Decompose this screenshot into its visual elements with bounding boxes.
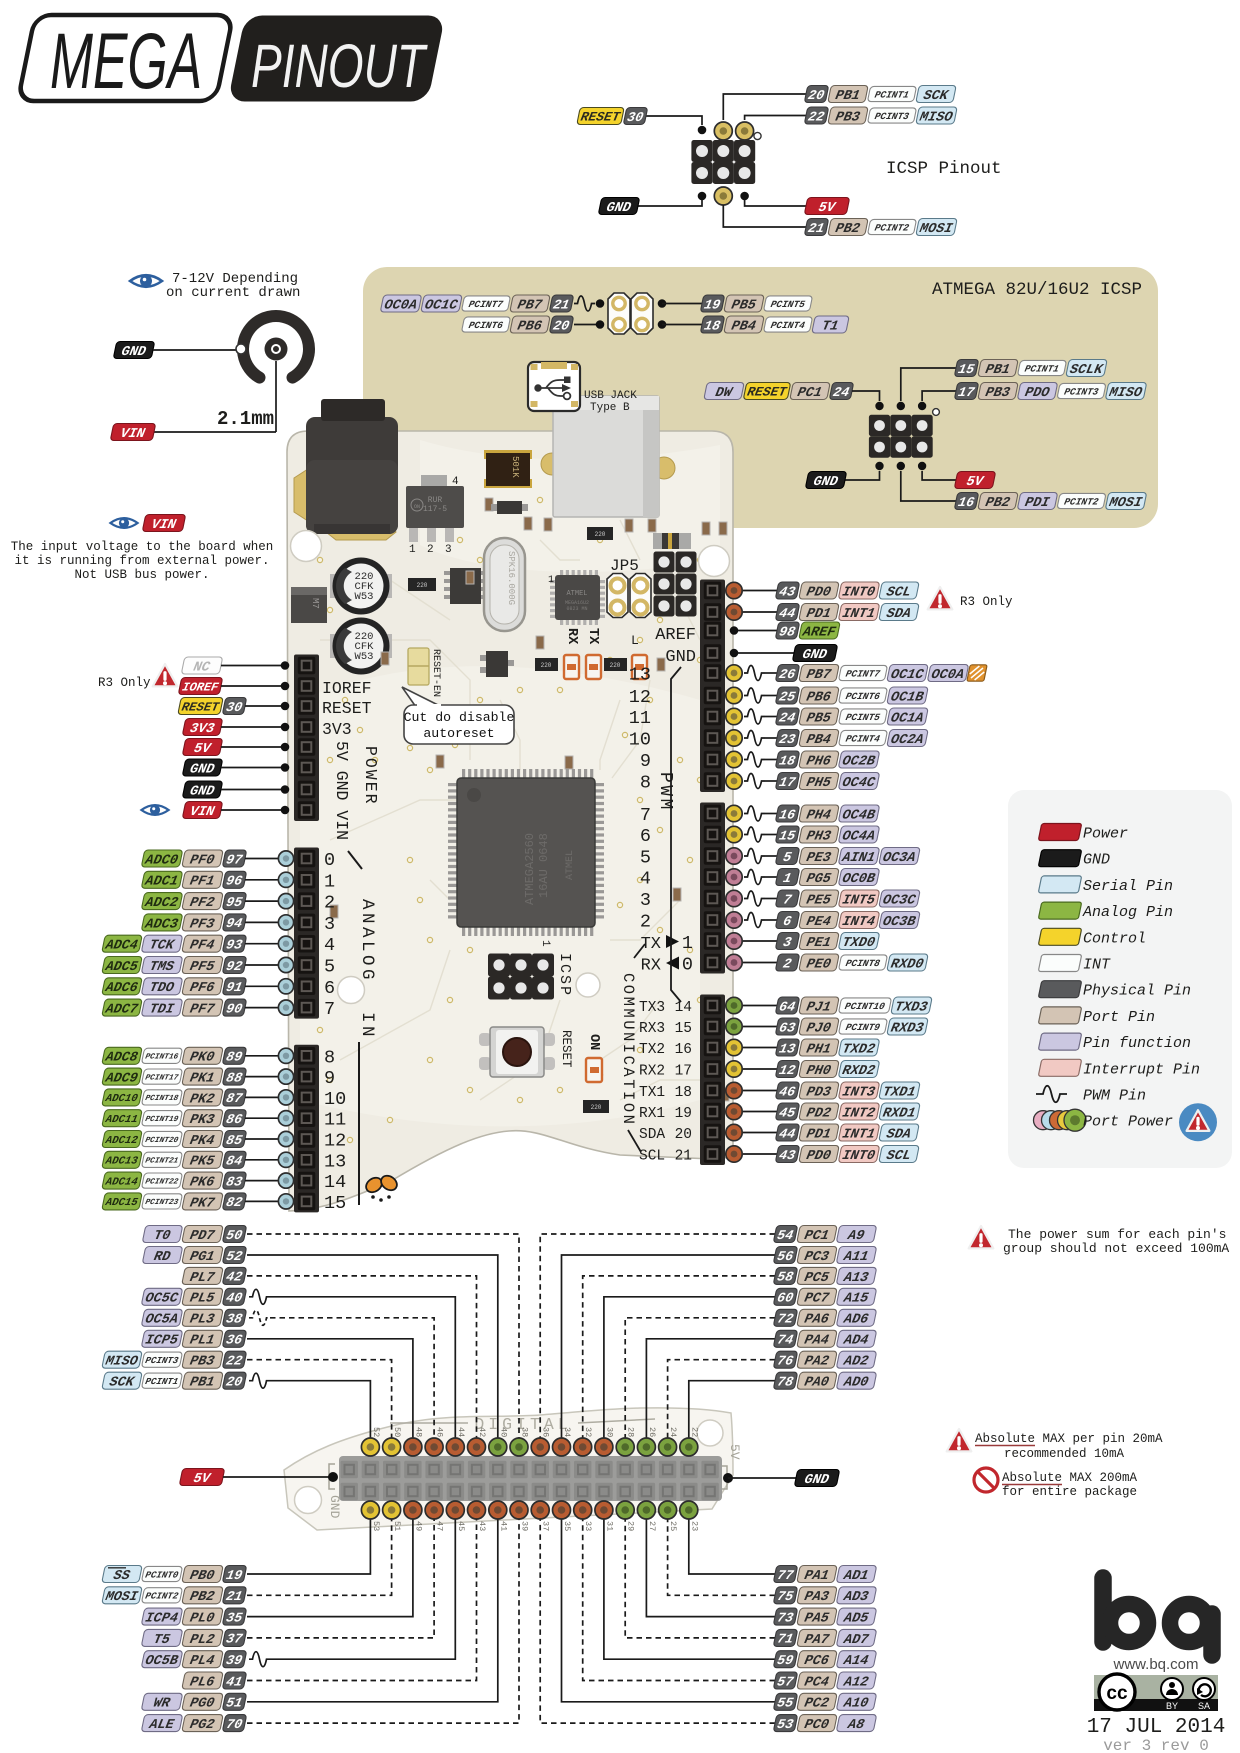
svg-text:it is running from external po: it is running from external power. <box>14 554 269 568</box>
svg-text:PA7: PA7 <box>803 1633 831 1648</box>
svg-text:PB5: PB5 <box>730 299 757 314</box>
svg-text:12: 12 <box>324 1131 346 1152</box>
svg-text:INT1: INT1 <box>841 607 876 622</box>
svg-text:PL4: PL4 <box>188 1654 215 1669</box>
svg-text:A15: A15 <box>841 1292 869 1307</box>
svg-text:21: 21 <box>675 1149 692 1165</box>
svg-text:PL5: PL5 <box>188 1292 215 1307</box>
svg-text:PE0: PE0 <box>805 958 832 973</box>
svg-text:PCINT23: PCINT23 <box>144 1198 179 1207</box>
svg-text:98: 98 <box>778 625 797 640</box>
svg-text:ANALOG: ANALOG <box>357 899 377 983</box>
svg-text:OC5C: OC5C <box>144 1292 180 1307</box>
svg-text:OC3A: OC3A <box>881 851 916 866</box>
svg-text:39: 39 <box>225 1654 244 1669</box>
svg-text:5: 5 <box>640 848 651 869</box>
svg-text:Absolute MAX 200mA: Absolute MAX 200mA <box>1002 1471 1138 1485</box>
svg-text:SA: SA <box>1198 1701 1210 1711</box>
svg-text:VIN: VIN <box>150 518 178 533</box>
svg-text:OC0B: OC0B <box>841 872 877 887</box>
svg-text:ADC6: ADC6 <box>103 981 139 996</box>
svg-text:TDO: TDO <box>148 981 176 996</box>
svg-text:26: 26 <box>778 668 797 683</box>
svg-text:220: 220 <box>541 662 552 669</box>
svg-text:PCINT6: PCINT6 <box>468 320 505 331</box>
svg-text:24: 24 <box>778 711 797 726</box>
svg-text:RESET: RESET <box>579 110 622 125</box>
svg-text:16: 16 <box>778 808 797 823</box>
svg-text:Analog Pin: Analog Pin <box>1082 904 1173 921</box>
svg-text:ICSP Pinout: ICSP Pinout <box>886 159 1002 179</box>
svg-text:PCINT3: PCINT3 <box>1063 386 1100 397</box>
svg-text:Serial Pin: Serial Pin <box>1083 878 1173 895</box>
svg-text:OC4A: OC4A <box>841 830 876 845</box>
svg-text:AD7: AD7 <box>841 1633 870 1648</box>
svg-text:PB6: PB6 <box>805 691 832 706</box>
svg-text:22: 22 <box>807 110 826 125</box>
svg-text:SCL: SCL <box>885 1149 912 1164</box>
svg-text:PL1: PL1 <box>188 1334 215 1349</box>
svg-text:VIN: VIN <box>119 427 147 442</box>
svg-text:PC1: PC1 <box>803 1229 830 1244</box>
svg-text:AREF: AREF <box>655 626 696 645</box>
svg-text:PWM: PWM <box>655 772 675 812</box>
svg-text:A11: A11 <box>841 1250 869 1265</box>
svg-text:INT3: INT3 <box>841 1086 876 1101</box>
svg-text:A13: A13 <box>841 1271 869 1286</box>
svg-text:PB3: PB3 <box>984 386 1011 401</box>
svg-text:ATMEL: ATMEL <box>566 590 587 598</box>
svg-text:2.1mm: 2.1mm <box>217 408 274 430</box>
svg-text:56: 56 <box>776 1250 795 1265</box>
svg-text:38: 38 <box>520 1427 530 1437</box>
svg-text:42: 42 <box>225 1271 244 1286</box>
svg-text:55: 55 <box>776 1697 795 1712</box>
svg-text:42: 42 <box>477 1427 487 1437</box>
svg-text:40: 40 <box>225 1292 244 1307</box>
svg-text:GND: GND <box>120 345 147 360</box>
svg-text:PF3: PF3 <box>188 917 215 932</box>
svg-text:Pin function: Pin function <box>1083 1035 1191 1052</box>
svg-text:40: 40 <box>498 1427 508 1437</box>
svg-text:21: 21 <box>807 222 826 237</box>
svg-text:43: 43 <box>778 585 797 600</box>
svg-text:IOREF: IOREF <box>322 679 372 698</box>
svg-text:Type B: Type B <box>590 402 630 414</box>
svg-text:78: 78 <box>776 1376 795 1391</box>
svg-text:96: 96 <box>225 875 244 890</box>
svg-text:AREF: AREF <box>800 626 837 641</box>
svg-text:PF5: PF5 <box>188 960 215 975</box>
svg-text:35: 35 <box>562 1521 572 1531</box>
svg-text:8: 8 <box>324 1047 335 1068</box>
svg-text:22: 22 <box>225 1355 244 1370</box>
svg-text:220: 220 <box>591 1104 602 1111</box>
svg-text:TXD3: TXD3 <box>893 1001 928 1016</box>
svg-text:PCINT5: PCINT5 <box>770 299 807 310</box>
svg-text:PA3: PA3 <box>803 1590 830 1605</box>
svg-text:OC1C: OC1C <box>889 668 925 683</box>
svg-text:PH5: PH5 <box>805 776 832 791</box>
svg-text:W53: W53 <box>355 591 374 603</box>
svg-text:INT0: INT0 <box>841 1149 876 1164</box>
svg-text:PA2: PA2 <box>803 1355 830 1370</box>
svg-text:MOSI: MOSI <box>917 222 954 237</box>
svg-text:PL3: PL3 <box>188 1313 215 1328</box>
svg-text:on current drawn: on current drawn <box>166 285 300 301</box>
svg-text:PB0: PB0 <box>188 1569 215 1584</box>
svg-text:www.bq.com: www.bq.com <box>1112 1656 1198 1673</box>
svg-text:PA4: PA4 <box>803 1334 830 1349</box>
svg-text:PE3: PE3 <box>805 851 832 866</box>
svg-text:25: 25 <box>778 690 797 705</box>
svg-text:PD2: PD2 <box>805 1107 832 1122</box>
svg-text:OC1C: OC1C <box>423 299 459 314</box>
svg-text:PCINT16: PCINT16 <box>144 1053 179 1062</box>
svg-text:PC1: PC1 <box>796 386 823 401</box>
svg-text:0: 0 <box>324 850 335 871</box>
svg-text:VIN: VIN <box>188 805 216 820</box>
svg-text:OC5B: OC5B <box>144 1654 180 1669</box>
svg-text:GND: GND <box>665 648 696 667</box>
svg-text:10: 10 <box>629 730 651 751</box>
svg-text:ICP4: ICP4 <box>144 1612 179 1627</box>
svg-text:3V3: 3V3 <box>188 722 215 737</box>
svg-text:53: 53 <box>371 1521 381 1531</box>
svg-text:PF6: PF6 <box>188 981 215 996</box>
svg-text:RESET: RESET <box>559 1030 573 1068</box>
svg-text:OC1B: OC1B <box>889 691 925 706</box>
svg-text:M7: M7 <box>310 598 320 609</box>
svg-text:for entire package: for entire package <box>1002 1485 1137 1499</box>
svg-text:13: 13 <box>778 1042 797 1057</box>
svg-text:group should not exceed 100mA: group should not exceed 100mA <box>1003 1241 1229 1256</box>
svg-text:recommended 10mA: recommended 10mA <box>1004 1447 1125 1461</box>
svg-text:PCINT22: PCINT22 <box>144 1177 179 1186</box>
svg-text:Interrupt Pin: Interrupt Pin <box>1083 1061 1200 1078</box>
svg-text:14: 14 <box>675 1000 692 1016</box>
svg-text:ADC8: ADC8 <box>103 1051 139 1066</box>
svg-text:PA0: PA0 <box>803 1376 830 1391</box>
svg-text:PF1: PF1 <box>188 875 215 890</box>
svg-text:RESET: RESET <box>180 701 221 715</box>
svg-text:PK1: PK1 <box>188 1072 215 1087</box>
svg-text:ADC2: ADC2 <box>143 896 179 911</box>
svg-text:72: 72 <box>776 1313 795 1328</box>
svg-text:MOSI: MOSI <box>1107 496 1144 511</box>
svg-text:5V: 5V <box>727 1444 742 1460</box>
svg-text:ADC5: ADC5 <box>103 960 139 975</box>
svg-text:TX3: TX3 <box>639 1000 665 1016</box>
svg-text:94: 94 <box>225 917 244 932</box>
svg-text:PCINT10: PCINT10 <box>844 1001 886 1012</box>
svg-text:INT0: INT0 <box>841 586 876 601</box>
svg-text:ATMEGA 82U/16U2 ICSP: ATMEGA 82U/16U2 ICSP <box>932 280 1142 300</box>
svg-text:13: 13 <box>629 665 651 686</box>
svg-text:RXD1: RXD1 <box>881 1107 916 1122</box>
svg-text:36: 36 <box>225 1334 244 1349</box>
svg-text:3: 3 <box>324 914 335 935</box>
svg-text:SDA: SDA <box>885 1128 912 1143</box>
svg-text:20: 20 <box>225 1376 244 1391</box>
svg-text:PA6: PA6 <box>803 1313 830 1328</box>
svg-text:ADC9: ADC9 <box>103 1072 139 1087</box>
svg-text:PB3: PB3 <box>188 1355 215 1370</box>
svg-text:PK7: PK7 <box>188 1196 216 1211</box>
svg-text:ADC13: ADC13 <box>103 1156 139 1168</box>
svg-text:30: 30 <box>225 701 244 716</box>
svg-text:ver 3 rev 0: ver 3 rev 0 <box>1103 1737 1209 1753</box>
svg-text:PC6: PC6 <box>803 1654 830 1669</box>
svg-text:L: L <box>631 633 639 648</box>
svg-text:74: 74 <box>776 1334 795 1349</box>
svg-text:AD5: AD5 <box>841 1612 869 1627</box>
svg-text:46: 46 <box>435 1427 445 1437</box>
svg-text:PB1: PB1 <box>834 89 861 104</box>
svg-text:20: 20 <box>675 1127 692 1143</box>
svg-text:PF2: PF2 <box>188 896 215 911</box>
svg-text:PH0: PH0 <box>805 1064 832 1079</box>
svg-text:4: 4 <box>452 476 459 488</box>
svg-text:INT4: INT4 <box>841 915 876 930</box>
svg-text:53: 53 <box>776 1718 795 1733</box>
svg-text:PF7: PF7 <box>188 1003 216 1018</box>
svg-text:28: 28 <box>626 1427 636 1437</box>
svg-text:5V GND VIN: 5V GND VIN <box>332 741 351 840</box>
svg-text:A9: A9 <box>845 1229 865 1244</box>
svg-text:PE1: PE1 <box>805 936 832 951</box>
svg-text:11: 11 <box>629 708 651 729</box>
svg-text:23: 23 <box>689 1521 699 1531</box>
svg-text:RXD3: RXD3 <box>889 1022 924 1037</box>
svg-text:PD7: PD7 <box>188 1229 216 1244</box>
svg-text:52: 52 <box>371 1427 381 1437</box>
svg-text:RESET-EN: RESET-EN <box>430 649 441 697</box>
svg-text:85: 85 <box>225 1134 244 1149</box>
svg-text:PG5: PG5 <box>805 872 832 887</box>
svg-text:AD1: AD1 <box>841 1569 869 1584</box>
svg-text:16: 16 <box>675 1042 692 1058</box>
svg-text:ICSP: ICSP <box>556 953 573 997</box>
svg-text:35: 35 <box>225 1612 244 1627</box>
svg-text:OC4B: OC4B <box>841 809 877 824</box>
svg-text:PCINT17: PCINT17 <box>144 1073 179 1082</box>
svg-text:PINOUT: PINOUT <box>251 32 428 100</box>
svg-text:PCINT21: PCINT21 <box>144 1157 179 1166</box>
svg-text:OC2B: OC2B <box>841 755 877 770</box>
svg-text:PK3: PK3 <box>188 1113 215 1128</box>
svg-text:75: 75 <box>776 1590 795 1605</box>
svg-text:48: 48 <box>413 1427 423 1437</box>
svg-text:Cut do disable: Cut do disable <box>404 710 515 725</box>
svg-text:18: 18 <box>675 1085 692 1101</box>
svg-text:PL6: PL6 <box>188 1676 215 1691</box>
svg-text:PE5: PE5 <box>805 894 832 909</box>
svg-text:PC2: PC2 <box>803 1697 830 1712</box>
svg-text:21: 21 <box>552 298 571 313</box>
svg-text:IOREF: IOREF <box>181 680 220 694</box>
svg-text:PCINT3: PCINT3 <box>874 111 911 122</box>
svg-text:TX2: TX2 <box>639 1042 665 1058</box>
svg-text:PCINT19: PCINT19 <box>144 1115 179 1124</box>
svg-text:SDA: SDA <box>885 607 912 622</box>
svg-text:GND: GND <box>605 201 632 216</box>
svg-text:19: 19 <box>703 298 722 313</box>
svg-text:TMS: TMS <box>148 960 176 975</box>
svg-text:Physical Pin: Physical Pin <box>1083 983 1191 1000</box>
svg-text:W53: W53 <box>355 651 374 663</box>
svg-text:PK6: PK6 <box>188 1176 215 1191</box>
svg-text:TXD0: TXD0 <box>841 936 876 951</box>
svg-text:16AU 0648: 16AU 0648 <box>537 833 551 898</box>
svg-text:A8: A8 <box>845 1718 865 1733</box>
svg-text:PD1: PD1 <box>805 1128 832 1143</box>
svg-text:PB6: PB6 <box>516 320 543 335</box>
svg-text:83: 83 <box>225 1176 244 1191</box>
svg-text:ALE: ALE <box>147 1718 176 1733</box>
svg-text:43: 43 <box>477 1521 487 1531</box>
svg-text:INT: INT <box>1083 957 1111 974</box>
svg-text:T0: T0 <box>152 1229 171 1244</box>
svg-text:PB2: PB2 <box>834 222 861 237</box>
svg-text:PK4: PK4 <box>188 1134 215 1149</box>
svg-text:PK5: PK5 <box>188 1155 215 1170</box>
svg-text:18: 18 <box>778 754 797 769</box>
svg-text:7: 7 <box>324 999 335 1020</box>
svg-text:PCINT1: PCINT1 <box>874 89 911 100</box>
svg-text:ADC10: ADC10 <box>103 1093 139 1105</box>
svg-text:36: 36 <box>541 1427 551 1437</box>
svg-text:7: 7 <box>640 805 651 826</box>
svg-text:ADC1: ADC1 <box>143 875 179 890</box>
svg-text:PD0: PD0 <box>805 1149 832 1164</box>
svg-text:PF0: PF0 <box>188 854 215 869</box>
svg-text:51: 51 <box>225 1697 244 1712</box>
svg-text:21: 21 <box>225 1590 244 1605</box>
svg-text:AD3: AD3 <box>841 1590 869 1605</box>
svg-text:41: 41 <box>225 1675 244 1690</box>
svg-text:0823 MN: 0823 MN <box>566 606 587 612</box>
svg-text:44: 44 <box>778 1127 797 1142</box>
svg-text:GND: GND <box>188 785 215 800</box>
svg-text:ADC14: ADC14 <box>103 1176 139 1188</box>
svg-text:PH4: PH4 <box>805 809 832 824</box>
svg-text:Not USB bus power.: Not USB bus power. <box>74 568 209 582</box>
svg-text:JP5: JP5 <box>610 557 639 575</box>
svg-text:OC0A: OC0A <box>383 299 418 314</box>
svg-text:PD1: PD1 <box>805 607 832 622</box>
svg-text:20: 20 <box>807 89 826 104</box>
svg-text:PB1: PB1 <box>984 363 1011 378</box>
svg-text:3V3: 3V3 <box>322 720 352 739</box>
svg-text:PB4: PB4 <box>805 733 832 748</box>
svg-text:PCINT18: PCINT18 <box>144 1094 179 1103</box>
svg-text:PB7: PB7 <box>805 668 833 683</box>
svg-text:73: 73 <box>776 1612 795 1627</box>
svg-text:T5: T5 <box>152 1633 171 1648</box>
svg-text:T1: T1 <box>820 320 839 335</box>
svg-text:76: 76 <box>776 1355 795 1370</box>
svg-text:44: 44 <box>456 1427 466 1437</box>
svg-text:PCINT2: PCINT2 <box>874 222 911 233</box>
svg-text:PCINT3: PCINT3 <box>144 1355 180 1366</box>
svg-text:PDI: PDI <box>1023 496 1051 511</box>
svg-text:15: 15 <box>957 363 976 378</box>
svg-text:autoreset: autoreset <box>423 726 494 741</box>
svg-text:88: 88 <box>225 1072 244 1087</box>
svg-text:ADC15: ADC15 <box>103 1197 139 1209</box>
svg-text:PCINT1: PCINT1 <box>144 1376 179 1387</box>
svg-text:A10: A10 <box>841 1697 869 1712</box>
svg-text:92: 92 <box>225 960 244 975</box>
svg-text:3: 3 <box>445 544 452 556</box>
svg-text:70: 70 <box>225 1718 244 1733</box>
svg-text:11: 11 <box>324 1110 346 1131</box>
svg-text:33: 33 <box>583 1521 593 1531</box>
svg-text:50: 50 <box>225 1229 244 1244</box>
svg-text:PCINT7: PCINT7 <box>468 299 505 310</box>
svg-text:GND: GND <box>803 1473 830 1488</box>
svg-text:82: 82 <box>225 1196 244 1211</box>
svg-text:54: 54 <box>776 1229 795 1244</box>
svg-text:PWM Pin: PWM Pin <box>1083 1088 1146 1105</box>
svg-text:PC3: PC3 <box>803 1250 830 1265</box>
svg-text:26: 26 <box>647 1427 657 1437</box>
svg-text:4: 4 <box>640 869 651 890</box>
svg-text:RX: RX <box>564 628 579 645</box>
svg-text:PCINT1: PCINT1 <box>1024 363 1061 374</box>
svg-text:220: 220 <box>610 662 621 669</box>
svg-text:ADC4: ADC4 <box>103 939 139 954</box>
svg-text:PJ0: PJ0 <box>805 1022 832 1037</box>
svg-text:90: 90 <box>225 1003 244 1018</box>
svg-text:INT2: INT2 <box>841 1107 876 1122</box>
svg-text:RD: RD <box>152 1250 171 1265</box>
svg-text:ATMEGA2560: ATMEGA2560 <box>523 833 537 905</box>
svg-text:RX3: RX3 <box>639 1021 665 1037</box>
svg-text:0: 0 <box>682 955 693 976</box>
svg-text:AD4: AD4 <box>841 1334 869 1349</box>
svg-text:PB2: PB2 <box>188 1590 215 1605</box>
svg-text:44: 44 <box>778 607 797 622</box>
svg-text:R3 Only: R3 Only <box>98 676 151 690</box>
svg-text:13: 13 <box>324 1151 346 1172</box>
svg-text:MISO: MISO <box>103 1355 139 1370</box>
svg-text:PA5: PA5 <box>803 1612 830 1627</box>
svg-text:MISO: MISO <box>1107 386 1144 401</box>
svg-text:PH1: PH1 <box>805 1043 832 1058</box>
svg-text:OC5A: OC5A <box>144 1313 179 1328</box>
svg-text:SCL: SCL <box>885 586 912 601</box>
svg-text:23: 23 <box>778 733 797 748</box>
svg-text:SCK: SCK <box>108 1376 137 1391</box>
svg-text:PL0: PL0 <box>188 1612 215 1627</box>
svg-text:51: 51 <box>392 1521 402 1531</box>
svg-text:PH6: PH6 <box>805 755 832 770</box>
svg-text:PG1: PG1 <box>188 1250 215 1265</box>
svg-text:PB4: PB4 <box>730 320 757 335</box>
svg-text:PCINT6: PCINT6 <box>845 691 882 702</box>
svg-text:1: 1 <box>324 871 335 892</box>
svg-text:TXD1: TXD1 <box>881 1086 916 1101</box>
svg-text:18: 18 <box>703 319 722 334</box>
svg-text:OC3C: OC3C <box>881 894 917 909</box>
svg-text:PCINT2: PCINT2 <box>1063 496 1100 507</box>
svg-text:52: 52 <box>225 1250 244 1265</box>
svg-text:71: 71 <box>776 1633 795 1648</box>
svg-text:SDA: SDA <box>639 1127 665 1143</box>
svg-text:PCINT9: PCINT9 <box>845 1022 882 1033</box>
